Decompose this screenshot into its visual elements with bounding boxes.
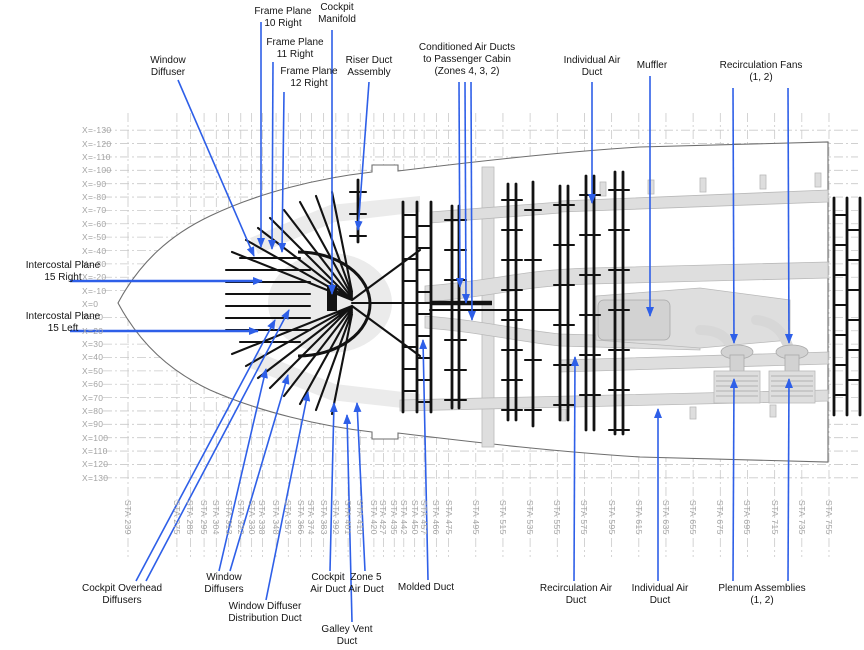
x-grid-label: X=-130 (82, 125, 111, 135)
sta-grid-label: STA 655 (688, 500, 697, 535)
sta-grid-label: STA 575 (579, 500, 588, 535)
sta-grid-label: STA 435 (389, 500, 398, 535)
callout-window-diffusers: Window Diffusers (204, 572, 243, 596)
leader-recirculation-fan-2 (788, 88, 789, 343)
leader-window-diffuser-distribution-duct (266, 392, 308, 600)
x-grid-label: X=90 (82, 419, 103, 429)
sta-grid-label: STA 338 (257, 500, 266, 535)
x-grid-label: X=100 (82, 433, 108, 443)
duct-stub (648, 180, 654, 194)
sta-grid-label: STA 410 (355, 500, 364, 535)
x-grid-label: X=-70 (82, 205, 106, 215)
callout-riser-duct-assembly: Riser Duct Assembly (346, 55, 393, 79)
x-grid-label: X=130 (82, 473, 108, 483)
leader-recirculation-fan-1 (733, 88, 734, 343)
sta-grid-label: STA 275 (172, 500, 181, 535)
sta-grid-label: STA 366 (296, 500, 305, 535)
sta-grid-label: STA 715 (770, 500, 779, 535)
x-grid-label: X=60 (82, 379, 103, 389)
x-grid-label: X=70 (82, 393, 103, 403)
sta-grid-label: STA 304 (211, 500, 220, 535)
x-grid-label: X=-90 (82, 179, 106, 189)
callout-individual-air-duct-bottom: Individual Air Duct (632, 583, 689, 607)
callout-zone-5-air-duct: Zone 5 Air Duct (348, 572, 384, 596)
duct-stub (770, 405, 776, 417)
x-grid-label: X=-110 (82, 152, 111, 162)
x-grid-label: X=-120 (82, 139, 111, 149)
sta-grid-label: STA 295 (199, 500, 208, 535)
x-grid-label: X=-40 (82, 246, 106, 256)
sta-grid-label: STA 615 (634, 500, 643, 535)
sta-grid-label: STA 420 (369, 500, 378, 535)
sta-grid-label: STA 450 (410, 500, 419, 535)
x-grid-label: X=110 (82, 446, 108, 456)
sta-grid-label: STA 466 (431, 500, 440, 535)
sta-grid-label: STA 457 (419, 500, 428, 535)
callout-individual-air-duct-top: Individual Air Duct (564, 55, 621, 79)
x-grid-label: X=-100 (82, 165, 111, 175)
sta-grid-label: STA 535 (525, 500, 534, 535)
sta-grid-label: STA 239 (123, 500, 132, 535)
duct-stub (760, 175, 766, 189)
leader-conditioned-air-zone3 (465, 82, 466, 303)
duct-stub (700, 178, 706, 192)
sta-grid-label: STA 695 (742, 500, 751, 535)
leader-plenum-assembly-2 (788, 379, 789, 581)
callout-window-diffuser-distribution-duct: Window Diffuser Distribution Duct (228, 601, 301, 625)
leader-frame-plane-11-right (272, 62, 273, 249)
sta-grid-label: STA 595 (607, 500, 616, 535)
callout-galley-vent-duct: Galley Vent Duct (321, 624, 372, 648)
x-grid-label: X=80 (82, 406, 103, 416)
leader-cockpit-air-duct (330, 403, 334, 571)
callout-intercostal-plane-15-left: Intercostal Plane 15 Left (26, 311, 101, 335)
x-grid-label: X=120 (82, 459, 108, 469)
callout-cockpit-manifold: Cockpit Manifold (318, 2, 356, 26)
sta-grid-label: STA 495 (471, 500, 480, 535)
sta-grid-label: STA 322 (236, 500, 245, 535)
air-distribution-diagram: X=-130X=-120X=-110X=-100X=-90X=-80X=-70X… (0, 0, 864, 650)
leader-recirculation-air-duct (574, 357, 575, 581)
leader-conditioned-air-zone2 (471, 82, 472, 320)
x-grid-label: X=-50 (82, 232, 106, 242)
duct-stub (815, 173, 821, 187)
sta-grid-label: STA 392 (331, 500, 340, 535)
sta-grid-label: STA 755 (824, 500, 833, 535)
sta-grid-label: STA 735 (797, 500, 806, 535)
sta-grid-label: STA 635 (661, 500, 670, 535)
sta-grid-label: STA 285 (185, 500, 194, 535)
sta-grid-label: STA 442 (399, 500, 408, 535)
callout-conditioned-air-ducts: Conditioned Air Ducts to Passenger Cabin… (419, 42, 515, 77)
callout-cockpit-overhead-diffusers: Cockpit Overhead Diffusers (82, 583, 162, 607)
sta-grid-label: STA 515 (498, 500, 507, 535)
callout-frame-plane-12-right: Frame Plane 12 Right (280, 66, 337, 90)
x-grid-label: X=-80 (82, 192, 106, 202)
sta-grid-label: STA 313 (224, 500, 233, 535)
sta-grid-label: STA 330 (247, 500, 256, 535)
callout-plenum-assemblies: Plenum Assemblies (1, 2) (718, 583, 805, 607)
duct-stub (600, 182, 606, 196)
sta-grid-label: STA 675 (715, 500, 724, 535)
sta-grid-label: STA 357 (283, 500, 292, 535)
callout-intercostal-plane-15-right: Intercostal Plane 15 Right (26, 260, 101, 284)
callout-window-diffuser: Window Diffuser (150, 55, 186, 79)
leader-plenum-assembly-1 (733, 379, 734, 581)
x-grid-label: X=40 (82, 352, 103, 362)
diagram-canvas (0, 0, 864, 650)
sta-grid-label: STA 374 (306, 500, 315, 535)
x-grid-label: X=50 (82, 366, 103, 376)
callout-frame-plane-11-right: Frame Plane 11 Right (266, 37, 323, 61)
sta-grid-label: STA 383 (319, 500, 328, 535)
sta-grid-label: STA 555 (552, 500, 561, 535)
duct-stub (690, 407, 696, 419)
sta-grid-label: STA 401 (343, 500, 352, 535)
callout-molded-duct: Molded Duct (398, 582, 454, 594)
callout-recirculation-fans: Recirculation Fans (1, 2) (720, 60, 803, 84)
x-grid-label: X=0 (82, 299, 98, 309)
muffler-body (598, 300, 670, 340)
sta-grid-label: STA 475 (444, 500, 453, 535)
leader-conditioned-air-zone4 (459, 82, 460, 287)
callout-cockpit-air-duct: Cockpit Air Duct (310, 572, 346, 596)
sta-grid-label: STA 348 (271, 500, 280, 535)
x-grid-label: X=-60 (82, 219, 106, 229)
x-grid-label: X=30 (82, 339, 103, 349)
sta-grid-label: STA 427 (378, 500, 387, 535)
callout-recirculation-air-duct: Recirculation Air Duct (540, 583, 612, 607)
callout-frame-plane-10-right: Frame Plane 10 Right (254, 6, 311, 30)
callout-muffler: Muffler (637, 60, 667, 72)
x-grid-label: X=-10 (82, 286, 106, 296)
